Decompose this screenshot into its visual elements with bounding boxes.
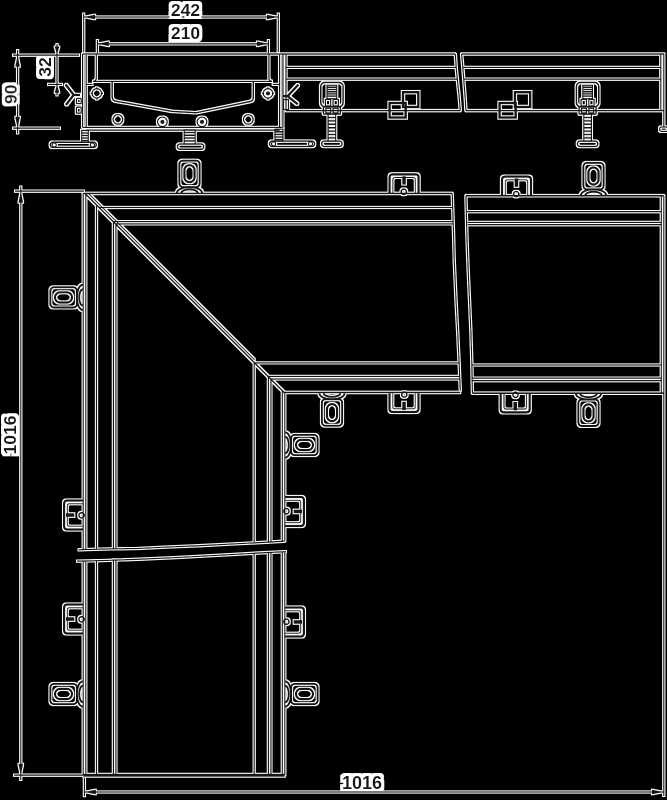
svg-text:210: 210 xyxy=(171,23,200,43)
svg-text:32: 32 xyxy=(35,57,55,77)
svg-text:242: 242 xyxy=(171,0,200,20)
svg-text:1016: 1016 xyxy=(0,415,20,454)
svg-text:1016: 1016 xyxy=(342,773,382,793)
svg-text:90: 90 xyxy=(1,84,21,104)
